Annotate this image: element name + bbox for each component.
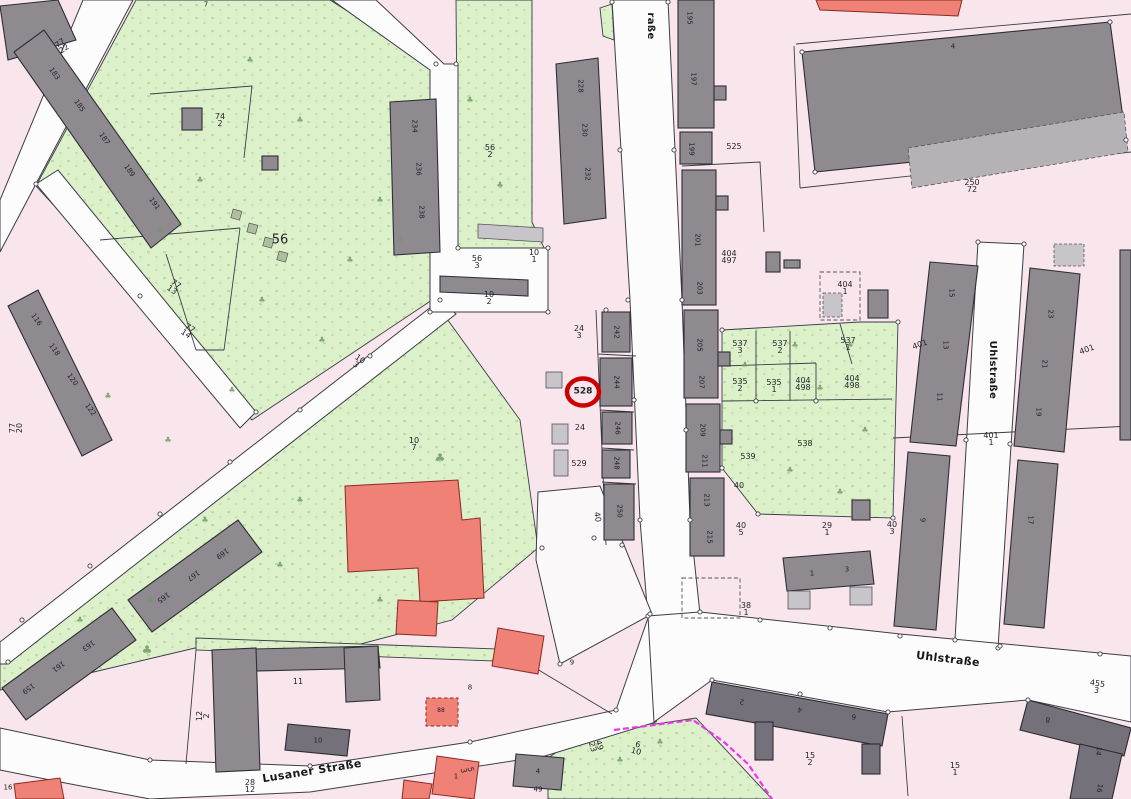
- building: [678, 0, 714, 128]
- shed: [766, 252, 780, 272]
- building: [1070, 744, 1122, 799]
- green-area: [600, 4, 614, 40]
- vertex-dot: [1022, 242, 1026, 246]
- building: [1014, 268, 1080, 452]
- vertex-dot: [614, 708, 618, 712]
- building-annex: [755, 722, 773, 760]
- vertex-dot: [710, 678, 714, 682]
- vertex-dot: [896, 320, 900, 324]
- vertex-dot: [456, 246, 460, 250]
- vertex-dot: [138, 294, 142, 298]
- red-building: [492, 628, 544, 674]
- garden-plot: [277, 251, 288, 262]
- vertex-dot: [546, 246, 550, 250]
- green-area: [722, 322, 898, 518]
- red-building: [14, 778, 64, 799]
- vertex-dot: [632, 398, 636, 402]
- building: [600, 358, 632, 406]
- building: [390, 99, 440, 255]
- highlight-circle: [567, 379, 599, 406]
- vertex-dot: [434, 62, 438, 66]
- vertex-dot: [684, 428, 688, 432]
- shed: [852, 500, 870, 520]
- building: [690, 478, 724, 556]
- building: [686, 404, 720, 472]
- vertex-dot: [720, 466, 724, 470]
- vertex-dot: [976, 240, 980, 244]
- vertex-dot: [800, 50, 804, 54]
- garden-plot: [263, 237, 274, 248]
- shed: [262, 156, 278, 170]
- red-building-dashed: [426, 698, 458, 726]
- green-area: [456, 0, 545, 250]
- vertex-dot: [964, 438, 968, 442]
- vertex-dot: [1124, 138, 1128, 142]
- vertex-dot: [618, 148, 622, 152]
- building: [285, 724, 350, 756]
- vertex-dot: [228, 460, 232, 464]
- building: [682, 170, 716, 305]
- vertex-dot: [672, 148, 676, 152]
- vertex-dot: [604, 308, 608, 312]
- building-annex: [720, 430, 732, 444]
- vertex-dot: [438, 298, 442, 302]
- vertex-dot: [428, 310, 432, 314]
- vertex-dot: [998, 644, 1002, 648]
- vertex-dot: [666, 0, 670, 4]
- building-annex: [718, 352, 730, 366]
- vertex-dot: [626, 298, 630, 302]
- building-annex: [716, 196, 728, 210]
- vertex-dot: [698, 610, 702, 614]
- building: [556, 58, 606, 224]
- parcel-white: [536, 486, 652, 664]
- garden-plot: [247, 223, 258, 234]
- vertex-dot: [648, 612, 652, 616]
- vertex-dot: [638, 518, 642, 522]
- shed-dashed: [1054, 244, 1084, 266]
- vertex-dot: [886, 710, 890, 714]
- vertex-dot: [620, 543, 624, 547]
- building: [783, 551, 874, 591]
- vertex-dot: [756, 512, 760, 516]
- shed: [850, 587, 872, 605]
- building: [680, 132, 712, 164]
- vertex-dot: [20, 618, 24, 622]
- vertex-dot: [891, 516, 895, 520]
- building: [8, 290, 112, 456]
- building: [602, 450, 630, 478]
- vertex-dot: [468, 740, 472, 744]
- shed-dashed: [823, 293, 842, 317]
- vertex-dot: [798, 692, 802, 696]
- vertex-dot: [368, 354, 372, 358]
- vertex-dot: [88, 564, 92, 568]
- building: [602, 312, 630, 352]
- vertex-dot: [592, 536, 596, 540]
- map-graphics: [0, 0, 1131, 799]
- building: [602, 412, 632, 444]
- building-annex: [714, 86, 726, 100]
- vertex-dot: [720, 328, 724, 332]
- vertex-dot: [754, 399, 758, 403]
- vertex-dot: [34, 182, 38, 186]
- red-building: [816, 0, 962, 16]
- building: [344, 646, 380, 702]
- red-building: [432, 756, 479, 799]
- shed: [554, 450, 568, 476]
- vertex-dot: [1008, 442, 1012, 446]
- vertex-dot: [1026, 698, 1030, 702]
- map-canvas[interactable]: raßeUhlstraßeUhlstraßeLusaner Straße5287…: [0, 0, 1131, 799]
- vertex-dot: [6, 660, 10, 664]
- vertex-dot: [758, 618, 762, 622]
- building: [1120, 250, 1131, 440]
- vertex-dot: [953, 638, 957, 642]
- shed: [784, 260, 800, 268]
- shed: [182, 108, 202, 130]
- building: [212, 648, 260, 772]
- vertex-dot: [688, 518, 692, 522]
- red-building: [396, 600, 438, 636]
- building: [513, 754, 564, 790]
- building-annex: [862, 744, 880, 774]
- vertex-dot: [298, 408, 302, 412]
- vertex-dot: [454, 62, 458, 66]
- shed: [546, 372, 562, 388]
- vertex-dot: [898, 634, 902, 638]
- vertex-dot: [814, 399, 818, 403]
- building: [684, 310, 718, 398]
- vertex-dot: [610, 0, 614, 4]
- vertex-dot: [546, 310, 550, 314]
- building: [440, 276, 528, 296]
- building: [1004, 460, 1058, 628]
- vertex-dot: [828, 626, 832, 630]
- vertex-dot: [308, 764, 312, 768]
- vertex-dot: [148, 758, 152, 762]
- building: [604, 484, 634, 540]
- vertex-dot: [680, 298, 684, 302]
- red-building: [402, 780, 432, 799]
- vertex-dot: [1108, 20, 1112, 24]
- vertex-dot: [254, 410, 258, 414]
- vertex-dot: [540, 546, 544, 550]
- shed: [868, 290, 888, 318]
- vertex-dot: [158, 512, 162, 516]
- building: [894, 452, 950, 630]
- shed: [552, 424, 568, 444]
- vertex-dot: [558, 662, 562, 666]
- shed: [788, 591, 810, 609]
- garden-plot: [231, 209, 242, 220]
- vertex-dot: [1098, 652, 1102, 656]
- vertex-dot: [813, 170, 817, 174]
